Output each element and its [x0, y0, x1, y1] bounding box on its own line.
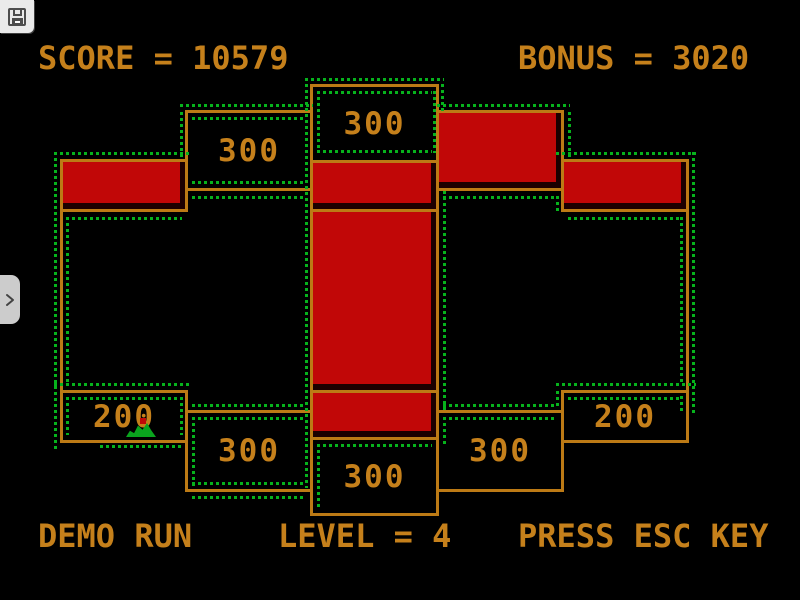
trail-dots — [305, 78, 444, 81]
trail-dots — [180, 112, 183, 158]
trail-dots — [680, 217, 683, 383]
trail-dots — [443, 404, 557, 407]
trail-dots — [54, 152, 57, 450]
region-center-lower — [310, 390, 439, 440]
trail-dots — [192, 117, 306, 120]
region-value: 300 — [469, 433, 531, 469]
trail-dots — [192, 417, 195, 487]
trail-dots — [437, 104, 570, 107]
trail-dots — [317, 444, 432, 447]
trail-dots — [443, 196, 557, 199]
region-right-upper — [561, 159, 689, 212]
region-center-middle — [310, 209, 439, 393]
trail-dots — [317, 91, 320, 153]
save-button[interactable] — [0, 0, 34, 33]
floppy-disk-icon — [6, 6, 28, 28]
region-bottom-center: 300 — [310, 437, 439, 516]
chevron-right-icon — [4, 292, 16, 308]
trail-dots — [568, 397, 680, 400]
trail-dots — [317, 91, 432, 94]
region-value: 300 — [344, 106, 406, 142]
region-value: 200 — [594, 399, 656, 435]
trail-dots — [192, 417, 306, 420]
trail-dots — [180, 104, 313, 107]
game-screen: 300300200200300300300 SCORE = 10579 BONU… — [0, 0, 800, 600]
trail-dots — [54, 152, 191, 155]
trail-dots — [180, 397, 183, 435]
trail-dots — [568, 112, 571, 158]
level-display: LEVEL = 4 — [278, 522, 451, 550]
demo-run-label: DEMO RUN — [38, 522, 192, 550]
drawer-toggle-button[interactable] — [0, 275, 20, 324]
trail-dots — [192, 496, 306, 499]
trail-dots — [100, 445, 184, 448]
trail-dots — [192, 181, 306, 184]
region-value: 300 — [218, 433, 280, 469]
trail-dots — [433, 91, 436, 153]
trail-dots — [680, 396, 683, 414]
trail-dots — [568, 217, 683, 220]
trail-dots — [192, 196, 306, 199]
press-esc-label: PRESS ESC KEY — [518, 522, 768, 550]
score-display: SCORE = 10579 — [38, 44, 288, 72]
trail-dots — [443, 417, 557, 420]
trail-dots — [317, 150, 432, 153]
region-value: 300 — [218, 133, 280, 169]
trail-dots — [66, 217, 182, 220]
region-top-left: 300 — [185, 110, 313, 191]
trail-dots — [54, 383, 191, 386]
trail-dots — [66, 217, 69, 383]
trail-dots — [317, 444, 320, 510]
trail-dots — [692, 152, 695, 414]
track-line — [60, 212, 63, 390]
region-bottom-right: 300 — [436, 410, 564, 492]
trail-dots — [556, 196, 559, 214]
trail-dots — [556, 152, 696, 155]
region-value: 300 — [344, 459, 406, 495]
trail-dots — [443, 417, 446, 447]
game-board: 300300200200300300300 — [0, 0, 800, 600]
track-line — [686, 212, 689, 390]
player-dot — [140, 418, 146, 424]
region-bottom-left: 300 — [185, 410, 313, 492]
trail-dots — [66, 397, 69, 435]
trail-dots — [441, 84, 444, 112]
trail-dots — [556, 391, 559, 409]
region-top-right — [436, 110, 564, 191]
trail-dots — [305, 84, 308, 488]
trail-dots — [556, 383, 696, 386]
trail-dots — [192, 482, 306, 485]
trail-dots — [66, 397, 182, 400]
trail-dots — [443, 191, 446, 411]
bonus-display: BONUS = 3020 — [518, 44, 749, 72]
region-center-upper — [310, 160, 439, 212]
trail-dots — [192, 404, 306, 407]
region-left-upper — [60, 159, 188, 212]
